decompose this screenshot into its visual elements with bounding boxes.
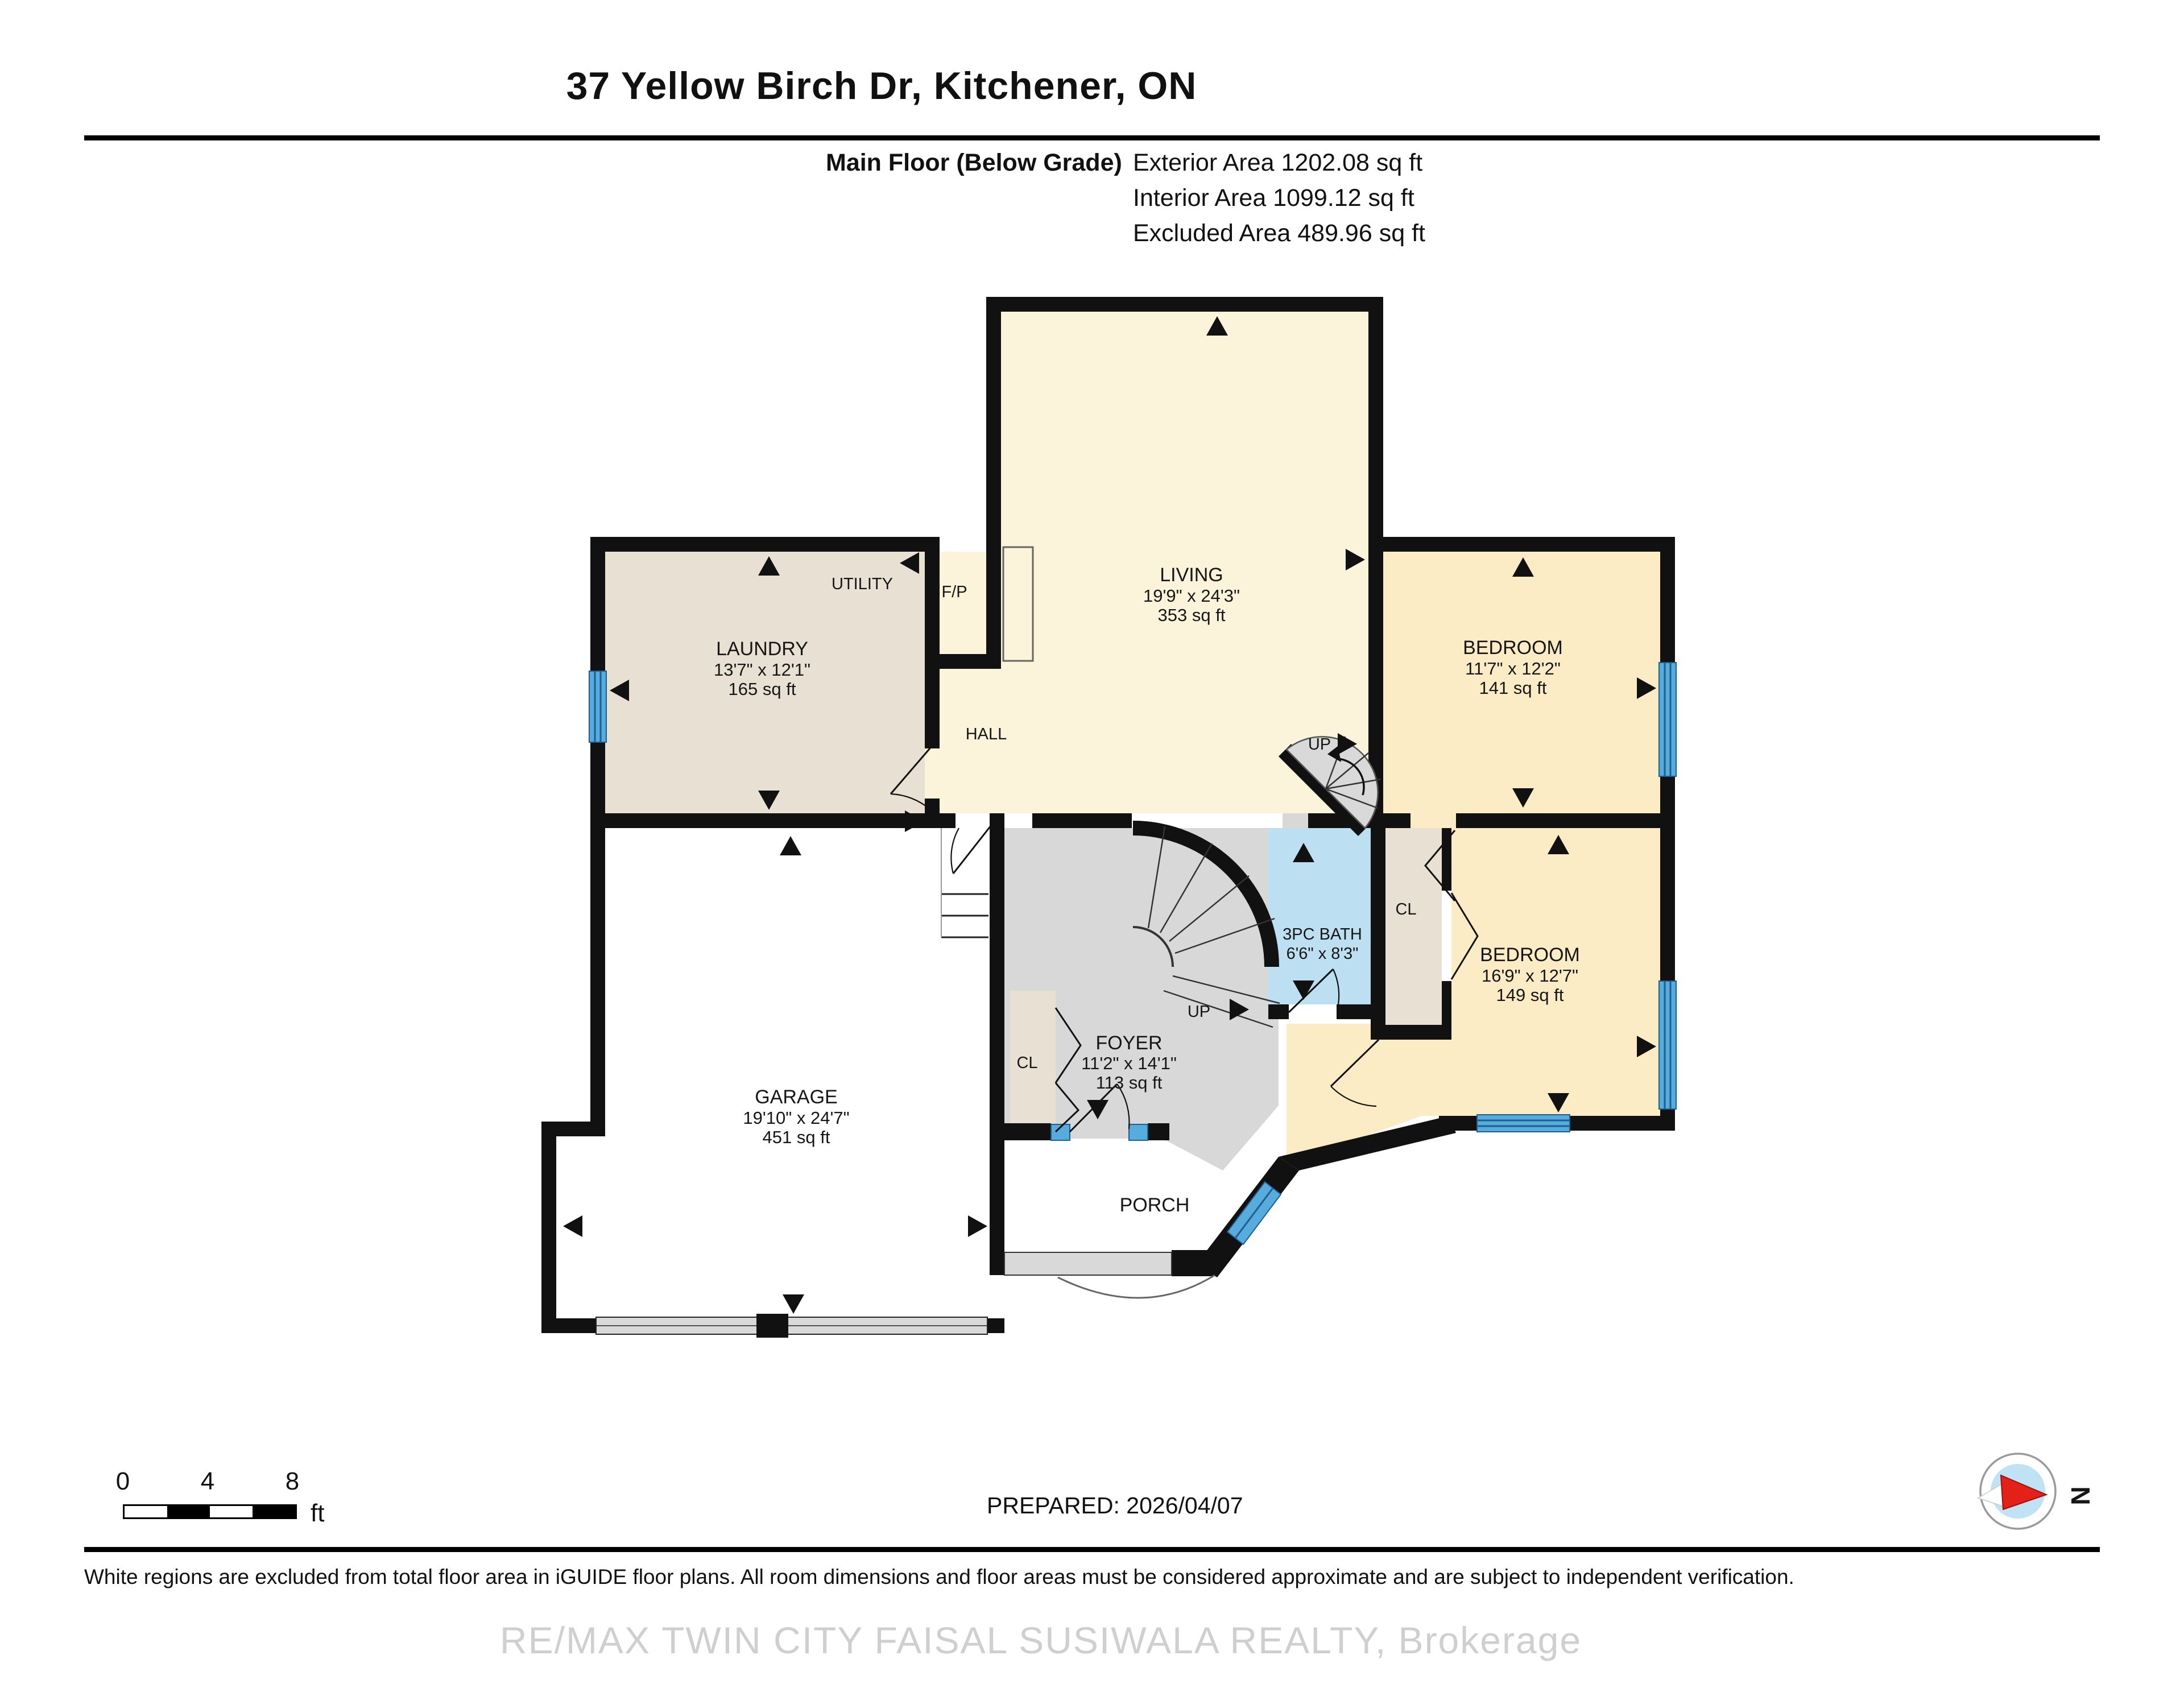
bedroom2-area: 149 sq ft [1496, 985, 1564, 1005]
hall-label: HALL [966, 725, 1007, 743]
bedroom1-label: BEDROOM [1463, 637, 1563, 659]
fireplace-hearth [1003, 547, 1033, 661]
garage-dims: 19'10" x 24'7" [743, 1108, 849, 1128]
garage-floor [556, 828, 990, 1318]
bedroom1-window [1659, 663, 1676, 776]
garage-door [596, 1314, 987, 1338]
bedroom2-window [1659, 981, 1676, 1109]
fireplace-label: F/P [941, 583, 967, 601]
fireplace-floor [940, 552, 986, 654]
scale-segment [253, 1506, 295, 1517]
foyer-area: 113 sq ft [1096, 1073, 1163, 1093]
scale-segment [210, 1506, 253, 1517]
compass-north-label: N [2066, 1486, 2095, 1505]
compass-icon: N [1978, 1454, 2095, 1529]
scale-segment [125, 1506, 167, 1517]
foyer-label: FOYER [1095, 1032, 1162, 1054]
foyer-dims: 11'2" x 14'1" [1081, 1053, 1177, 1073]
bath-closet-label: CL [1395, 900, 1416, 919]
utility-label: UTILITY [832, 575, 893, 593]
laundry-area: 165 sq ft [729, 679, 796, 699]
stair-gap-patch [1283, 813, 1308, 828]
floorplan-page: 37 Yellow Birch Dr, Kitchener, ON Main F… [0, 0, 2184, 1688]
brokerage-watermark: RE/MAX TWIN CITY FAISAL SUSIWALA REALTY,… [398, 1619, 1683, 1662]
garage-label: GARAGE [755, 1086, 837, 1108]
living-label: LIVING [1160, 564, 1223, 586]
laundry-door-patch [925, 748, 940, 799]
prepared-date: PREPARED: 2026/04/07 [987, 1492, 1243, 1519]
laundry-label: LAUNDRY [716, 638, 808, 660]
floorplan-drawing: LIVING 19'9" x 24'3" 353 sq ft BEDROOM 1… [0, 0, 2184, 1688]
bath-dims: 6'6" x 8'3" [1287, 945, 1359, 963]
bath-floor [1268, 828, 1371, 1004]
door-gap-patch [1410, 813, 1456, 828]
scale-bar [123, 1504, 297, 1519]
scale-segment [167, 1506, 210, 1517]
up-label-foyer: UP [1188, 1003, 1210, 1021]
bath-closet-floor [1385, 828, 1442, 1025]
garage-area: 451 sq ft [763, 1127, 830, 1147]
bedroom1-area: 141 sq ft [1479, 678, 1547, 698]
disclaimer-text: White regions are excluded from total fl… [84, 1565, 1794, 1589]
laundry-dims: 13'7" x 12'1" [714, 660, 810, 680]
living-area: 353 sq ft [1158, 605, 1226, 625]
divider-bottom [84, 1547, 2100, 1552]
scale-tick-8: 8 [286, 1467, 299, 1496]
scale-tick-0: 0 [116, 1467, 130, 1496]
bedroom2-label: BEDROOM [1480, 944, 1580, 966]
porch-label: PORCH [1120, 1194, 1190, 1216]
bedroom1-dims: 11'7" x 12'2" [1465, 659, 1561, 678]
foyer-closet-label: CL [1016, 1054, 1037, 1072]
scale-unit-label: ft [311, 1499, 324, 1528]
bedroom2-dims: 16'9" x 12'7" [1482, 966, 1578, 986]
foyer-sidelight-right [1129, 1124, 1148, 1140]
bath-label: 3PC BATH [1283, 925, 1362, 944]
scale-tick-4: 4 [201, 1467, 214, 1496]
laundry-window [589, 671, 606, 742]
up-label-living: UP [1308, 735, 1331, 754]
living-dims: 19'9" x 24'3" [1143, 586, 1240, 606]
bedroom2-bottom-window [1477, 1115, 1570, 1132]
